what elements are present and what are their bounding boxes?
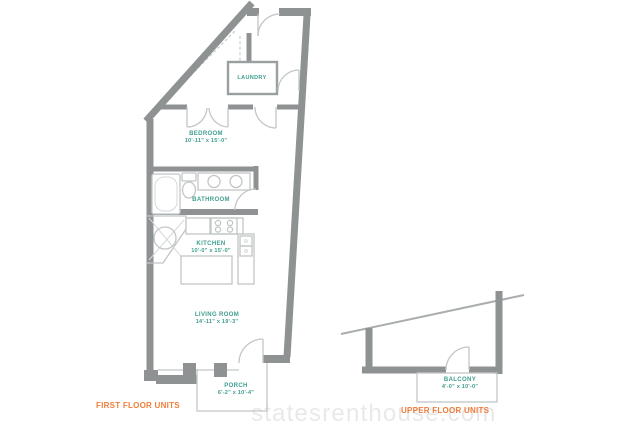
- toilet: [182, 173, 196, 198]
- room-label-kitchen: KITCHEN 10'-0" x 15'-0": [191, 241, 231, 255]
- kitchen-island: [181, 256, 232, 284]
- upper-floor-plan: [341, 291, 524, 402]
- balcony-door: [446, 347, 469, 370]
- upper-floor-units-label: UPPER FLOOR UNITS: [401, 406, 489, 415]
- porch-door: [239, 339, 263, 363]
- vanity-double-sink: [198, 173, 250, 190]
- entry-door-top: [258, 14, 280, 36]
- floor-plan-page: statesrenthouse.com: [0, 0, 640, 443]
- bathroom-door: [235, 189, 256, 210]
- room-label-porch: PORCH 6'-2" x 10'-4": [218, 383, 254, 397]
- room-label-bathroom: BATHROOM: [192, 197, 230, 204]
- porch-post: [183, 363, 196, 377]
- laundry-hall-door: [278, 70, 299, 91]
- porch-post: [214, 363, 227, 377]
- bedroom-door: [255, 107, 276, 128]
- kitchen-counter: [186, 218, 243, 234]
- first-floor-plan: [144, 3, 311, 411]
- room-label-bedroom: BEDROOM 10'-11" x 15'-0": [185, 131, 228, 145]
- bedroom-closet-double-doors: [187, 107, 228, 127]
- floor-plan-drawing: [0, 0, 640, 443]
- wall-cap: [144, 370, 158, 381]
- kitchen-side-counter: [238, 234, 254, 284]
- right-wall: [287, 15, 307, 357]
- room-label-laundry: LAUNDRY: [237, 75, 266, 82]
- room-label-living-room: LIVING ROOM 14'-11" x 19'-3": [195, 312, 239, 326]
- room-label-balcony: BALCONY 4'-0" x 10'-0": [442, 377, 478, 391]
- first-floor-units-label: FIRST FLOOR UNITS: [96, 401, 180, 410]
- bathtub: [152, 174, 180, 214]
